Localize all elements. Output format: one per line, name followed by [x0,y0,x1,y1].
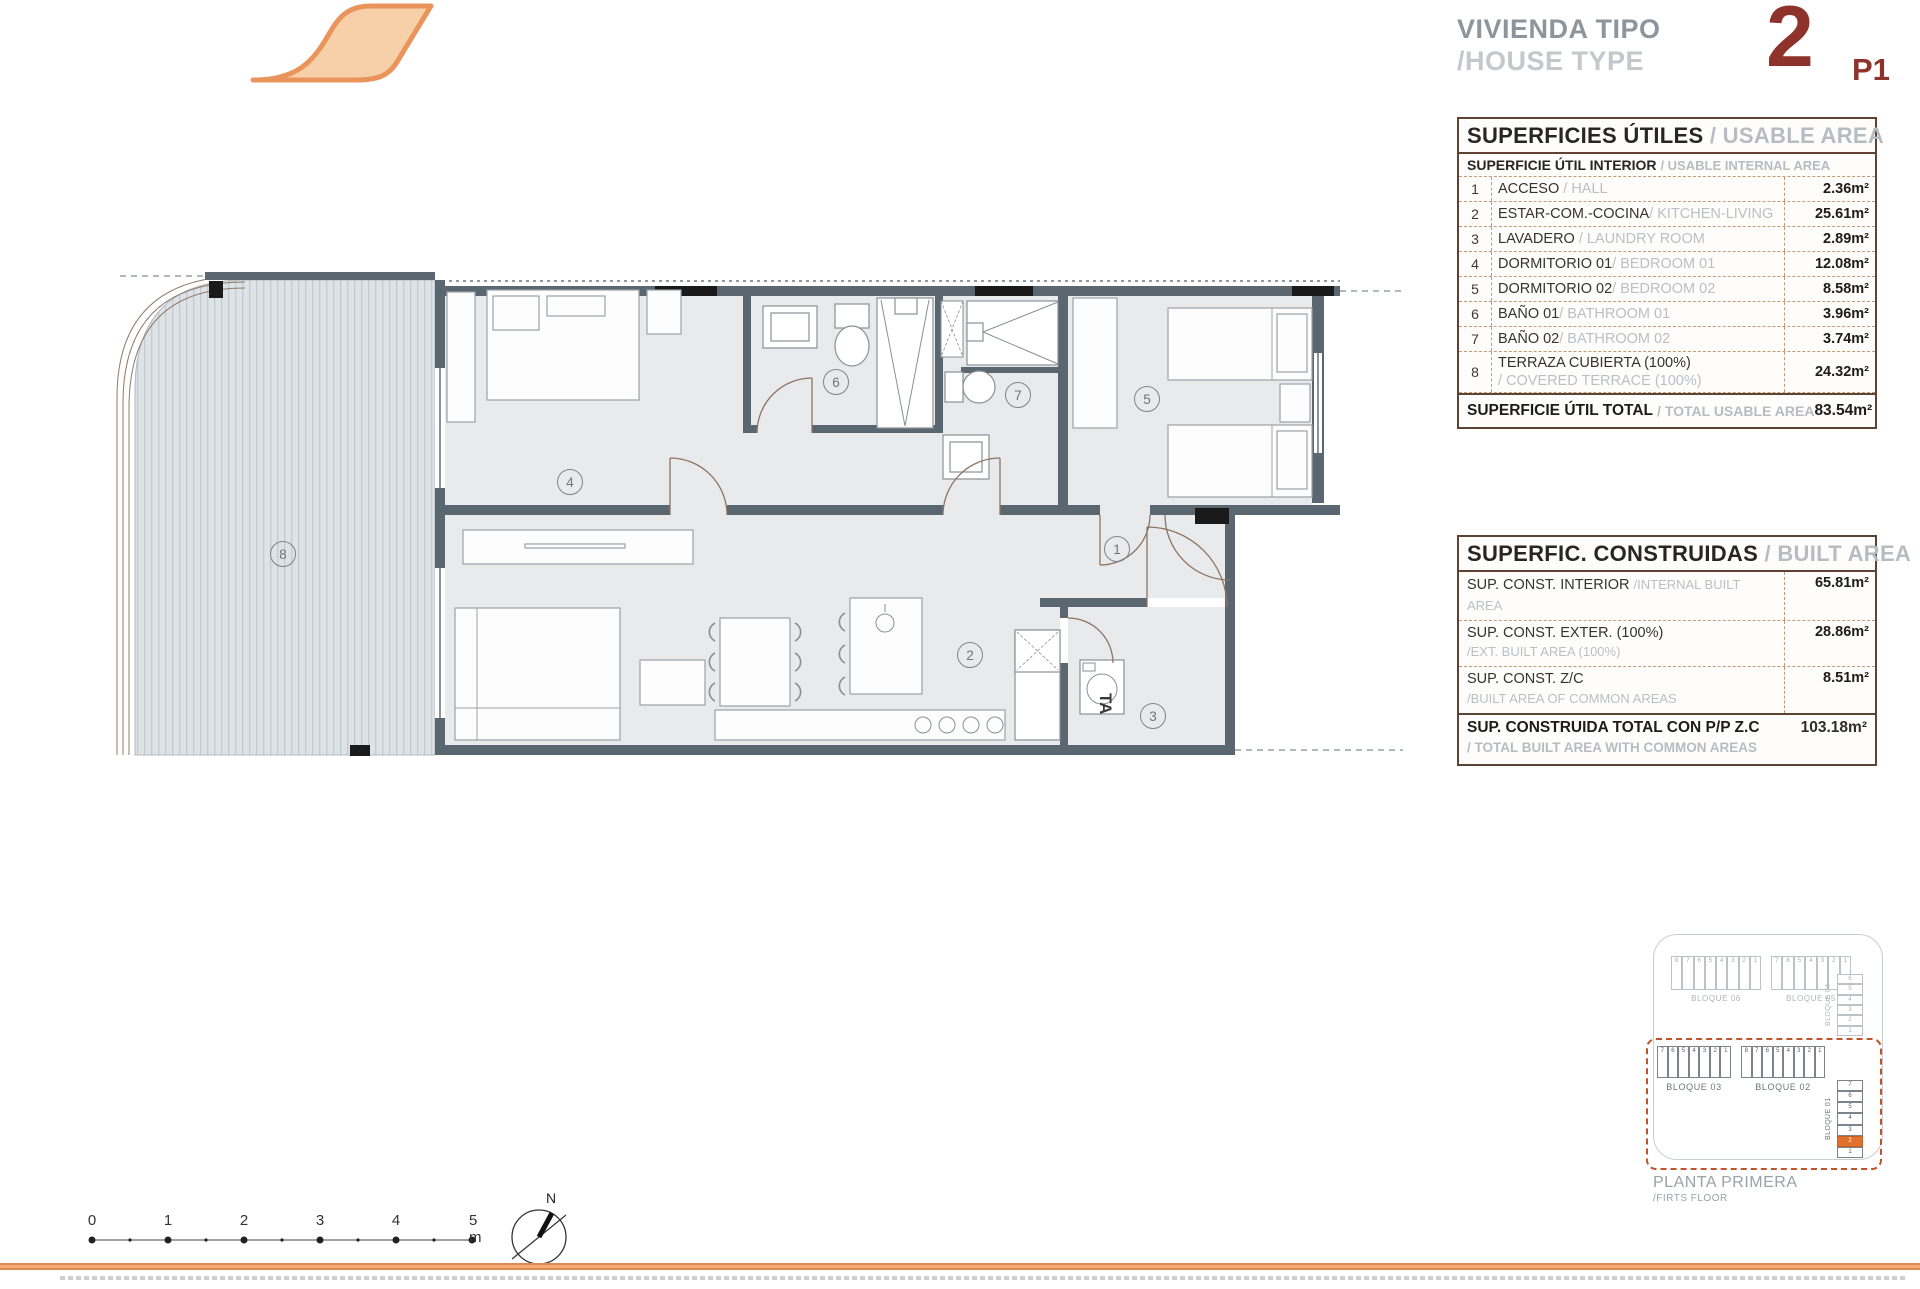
table-row: 8 TERRAZA CUBIERTA (100%)/ COVERED TERRA… [1459,352,1875,393]
site-unit-cell: 4 [1837,995,1863,1005]
site-unit-cell: 6 [1694,956,1705,990]
site-unit-cell: 6 [1782,956,1793,990]
site-unit-cell: 1 [1837,1026,1863,1036]
built-area-table-title: SUPERFIC. CONSTRUIDAS / BUILT AREA [1459,537,1875,572]
site-block-01-label: BLOQUE 01 [1825,1080,1832,1158]
table-title-es: SUPERFICIES ÚTILES [1467,123,1710,149]
site-unit-cell: 1 [1720,1046,1731,1078]
site-unit-cell: 6 [1837,1091,1863,1102]
usable-area-table-subtitle: SUPERFICIE ÚTIL INTERIOR / USABLE INTERN… [1459,154,1875,177]
site-unit-cell: 3 [1727,956,1738,990]
room-label-laundry: 3 [1140,703,1166,729]
usable-area-table: SUPERFICIES ÚTILES / USABLE AREA SUPERFI… [1457,117,1877,429]
site-unit-cell: 7 [1752,1046,1763,1078]
site-block-02: 87654321 [1741,1046,1825,1078]
table-row: 2 ESTAR-COM.-COCINA/ KITCHEN-LIVING 25.6… [1459,202,1875,227]
footer-disclaimer-cutoff [60,1276,1905,1280]
table-row: SUP. CONST. Z/C/BUILT AREA OF COMMON ARE… [1459,667,1875,713]
house-type-number: 2 [1766,0,1814,80]
site-unit-cell: 2 [1837,1136,1863,1147]
site-unit-cell: 3 [1837,1005,1863,1015]
site-block-04-label: BLOQUE 04 [1825,974,1832,1036]
north-arrow-icon [500,1192,590,1284]
site-plan: 87654321 BLOQUE 06 7654321 BLOQUE 05 654… [1645,928,1895,1218]
site-unit-cell: 5 [1837,984,1863,994]
site-block-03-label: BLOQUE 03 [1657,1082,1731,1092]
site-unit-cell: 7 [1657,1046,1668,1078]
scale-label-0: 0 [88,1212,96,1229]
usable-total-row: SUPERFICIE ÚTIL TOTAL / TOTAL USABLE ARE… [1459,393,1875,427]
room-label-hall: 1 [1104,536,1130,562]
footer-orange-rule [0,1263,1920,1270]
site-unit-cell: 5 [1837,1102,1863,1113]
site-unit-cell: 4 [1837,1113,1863,1124]
table-title-en: / USABLE AREA [1710,123,1884,149]
site-block-01: 7654321 [1837,1080,1863,1158]
site-unit-cell: 4 [1783,1046,1794,1078]
site-unit-cell: 2 [1739,956,1750,990]
floor-plan: 1 2 3 4 5 6 7 8 TA [95,268,1405,768]
usable-total-value: 83.54m² [1814,402,1872,420]
room-label-bathroom-01: 6 [823,369,849,395]
table-row: 1 ACCESO / HALL 2.36m² [1459,177,1875,202]
site-unit-cell: 5 [1794,956,1805,990]
site-unit-cell: 2 [1710,1046,1721,1078]
site-unit-cell: 4 [1805,956,1816,990]
floor-plan-drawing [95,268,1405,768]
brand-logo [245,0,445,86]
room-label-terrace: 8 [270,541,296,567]
site-unit-cell: 4 [1689,1046,1700,1078]
laundry-ta-label: TA [1095,693,1115,714]
scale-label-3: 3 [316,1212,324,1229]
site-unit-cell: 2 [1804,1046,1815,1078]
site-unit-cell: 7 [1682,956,1693,990]
site-unit-cell: 1 [1837,1147,1863,1158]
site-unit-cell: 7 [1837,1080,1863,1091]
site-block-04: 654321 [1837,974,1863,1036]
built-total-row: SUP. CONSTRUIDA TOTAL CON P/P Z.C 103.18… [1459,713,1875,764]
site-unit-cell: 1 [1750,956,1761,990]
room-label-bedroom-02: 5 [1134,386,1160,412]
site-plan-caption: PLANTA PRIMERA [1653,1174,1798,1192]
scale-label-2: 2 [240,1212,248,1229]
site-block-06-label: BLOQUE 06 [1671,994,1761,1003]
site-unit-cell: 6 [1668,1046,1679,1078]
site-plan-caption-sub: /FIRTS FLOOR [1653,1193,1728,1204]
built-total-value: 103.18m² [1801,718,1867,738]
table-row: SUP. CONST. INTERIOR /INTERNAL BUILT ARE… [1459,572,1875,621]
room-label-bathroom-02: 7 [1005,382,1031,408]
site-unit-cell: 5 [1678,1046,1689,1078]
usable-area-table-title: SUPERFICIES ÚTILES / USABLE AREA [1459,119,1875,154]
scale-label-4: 4 [392,1212,400,1229]
room-label-bedroom-01: 4 [557,469,583,495]
site-block-03: 7654321 [1657,1046,1731,1078]
scale-bar-line [80,1212,490,1252]
site-unit-cell: 7 [1771,956,1782,990]
site-unit-cell: 3 [1699,1046,1710,1078]
table-row: 4 DORMITORIO 01/ BEDROOM 01 12.08m² [1459,252,1875,277]
site-unit-cell: 6 [1762,1046,1773,1078]
site-block-06: 87654321 [1671,956,1761,990]
house-type-floor: P1 [1852,52,1890,88]
site-unit-cell: 5 [1773,1046,1784,1078]
site-unit-cell: 1 [1815,1046,1826,1078]
site-unit-cell: 8 [1671,956,1682,990]
site-unit-cell: 2 [1837,1015,1863,1025]
site-unit-cell: 6 [1837,974,1863,984]
site-unit-cell: 3 [1837,1125,1863,1136]
north-label: N [546,1190,556,1206]
house-type-title-en: /HOUSE TYPE [1457,46,1644,77]
site-unit-cell: 4 [1716,956,1727,990]
site-unit-cell: 5 [1705,956,1716,990]
table-row: 7 BAÑO 02/ BATHROOM 02 3.74m² [1459,327,1875,352]
scale-label-1: 1 [164,1212,172,1229]
table-row: 5 DORMITORIO 02/ BEDROOM 02 8.58m² [1459,277,1875,302]
built-area-table: SUPERFIC. CONSTRUIDAS / BUILT AREA SUP. … [1457,535,1877,766]
scale-bar: 0 1 2 3 4 5 m [80,1212,490,1252]
house-type-title-es: VIVIENDA TIPO [1457,14,1661,45]
table-row: 3 LAVADERO / LAUNDRY ROOM 2.89m² [1459,227,1875,252]
room-label-kitchen-living: 2 [957,642,983,668]
table-row: SUP. CONST. EXTER. (100%)/EXT. BUILT ARE… [1459,621,1875,668]
site-unit-cell: 3 [1794,1046,1805,1078]
scale-label-5: 5 m [469,1212,483,1246]
table-row: 6 BAÑO 01/ BATHROOM 01 3.96m² [1459,302,1875,327]
site-block-02-label: BLOQUE 02 [1741,1082,1825,1092]
site-unit-cell: 8 [1741,1046,1752,1078]
north-arrow: N [500,1192,590,1284]
